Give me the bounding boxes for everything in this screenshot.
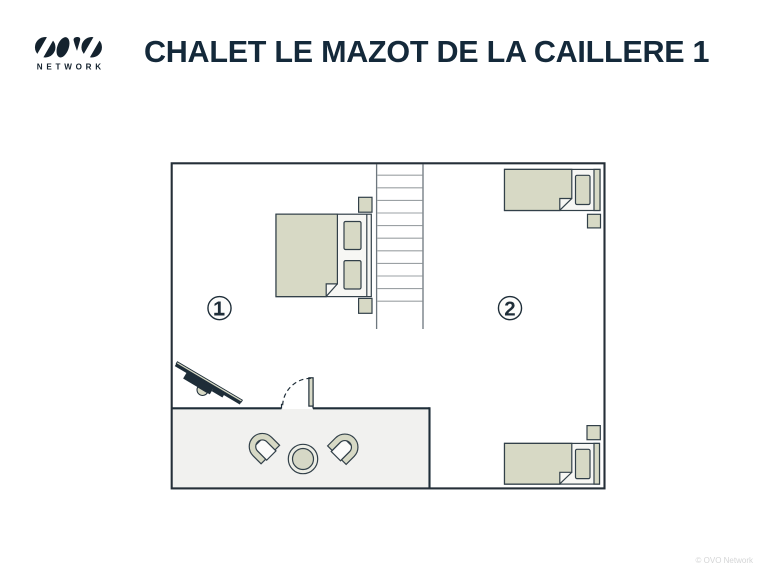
svg-text:2: 2 bbox=[504, 297, 515, 320]
svg-text:1: 1 bbox=[213, 297, 224, 320]
